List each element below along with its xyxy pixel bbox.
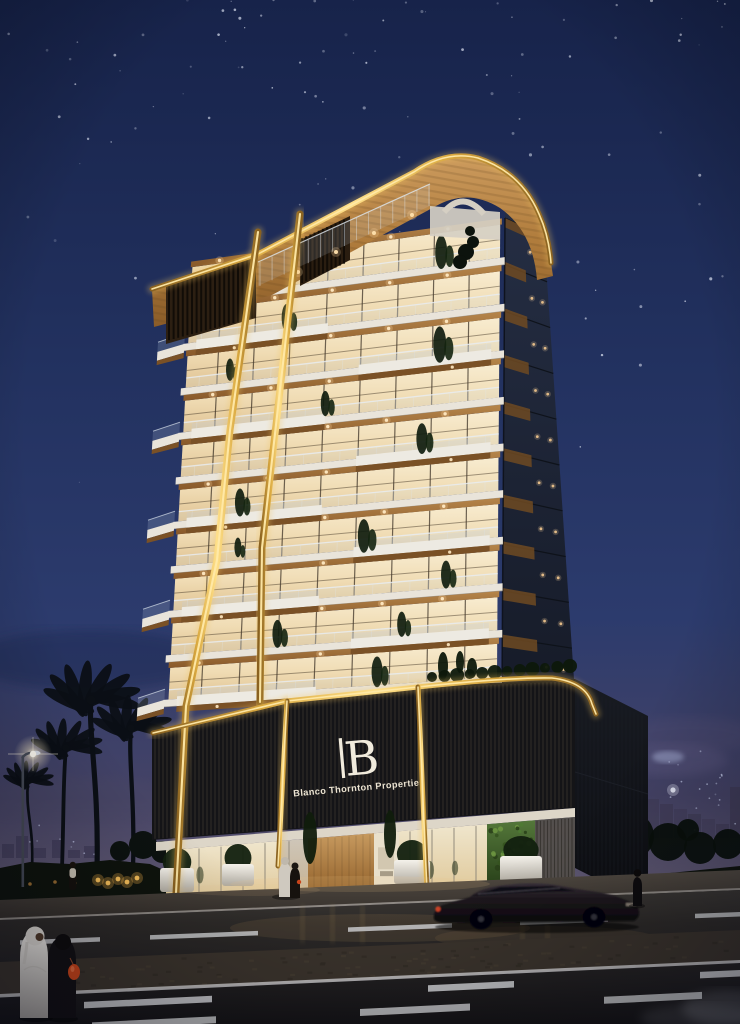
architectural-render: B Blanco Thornton Properties <box>0 0 740 1024</box>
vignette <box>0 0 740 1024</box>
scene-image: B Blanco Thornton Properties <box>0 0 740 1024</box>
